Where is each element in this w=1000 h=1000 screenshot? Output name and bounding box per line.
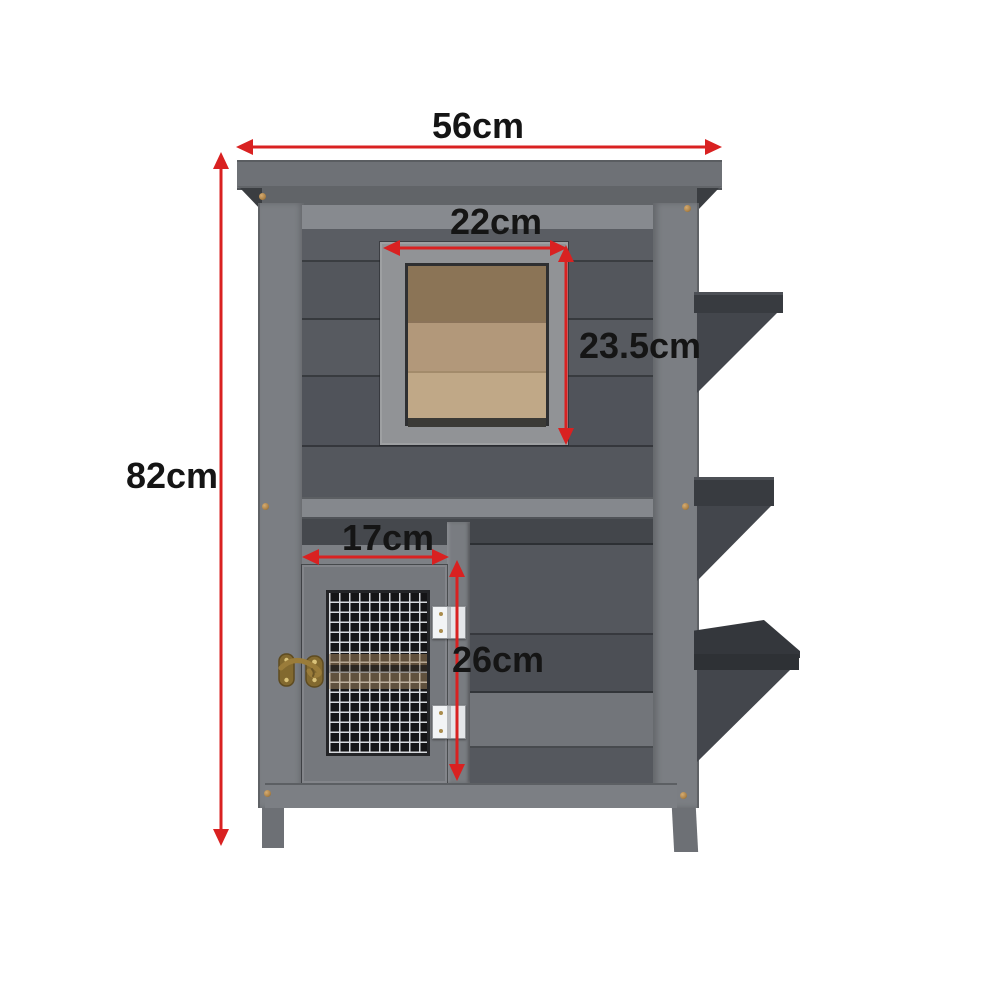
window-width-label: 22cm [450,204,542,240]
wall-plank [302,447,653,497]
upper-opening-frame [380,242,568,445]
roof-corner-shadow-right [697,188,719,211]
screw-icon [680,792,687,799]
screw-icon [262,503,269,510]
interior-wood-plank [408,371,546,418]
wire-mesh [326,590,430,756]
window-width-arrow [383,240,567,256]
right-corner-post [653,203,699,808]
interior-wood-plank [408,321,546,371]
screw-icon [259,193,266,200]
side-step-top [694,292,783,313]
interior-wood-plank [408,266,546,321]
right-leg [672,808,698,852]
overall-height-arrow [213,152,229,846]
middle-rail [302,497,653,519]
door-width-label: 17cm [342,520,434,556]
wall-plank [470,748,653,783]
wall-plank [470,693,653,748]
side-step-top-bracket [697,313,777,393]
wall-plank [470,545,653,635]
window-height-label: 23.5cm [579,328,701,364]
side-step-bottom-bracket [697,670,790,762]
brass-latch-icon [276,645,330,693]
left-leg [262,808,284,848]
screw-icon [684,205,691,212]
side-step-bottom [694,620,800,658]
side-step-bottom-edge [694,654,799,670]
overall-width-label: 56cm [432,108,524,144]
interior-floor-gap [408,418,546,427]
dimension-diagram: 56cm 82cm 22cm 23.5cm 17cm 26cm [0,0,1000,1000]
upper-opening-interior [405,263,549,426]
door-height-label: 26cm [452,642,544,678]
screw-icon [264,790,271,797]
side-step-middle-bracket [697,506,771,581]
bottom-rail [265,783,677,808]
wall-plank [470,519,653,545]
roof-panel [237,160,722,190]
overall-height-label: 82cm [126,458,218,494]
screw-icon [682,503,689,510]
window-height-arrow [558,245,574,445]
side-step-middle [694,477,774,506]
